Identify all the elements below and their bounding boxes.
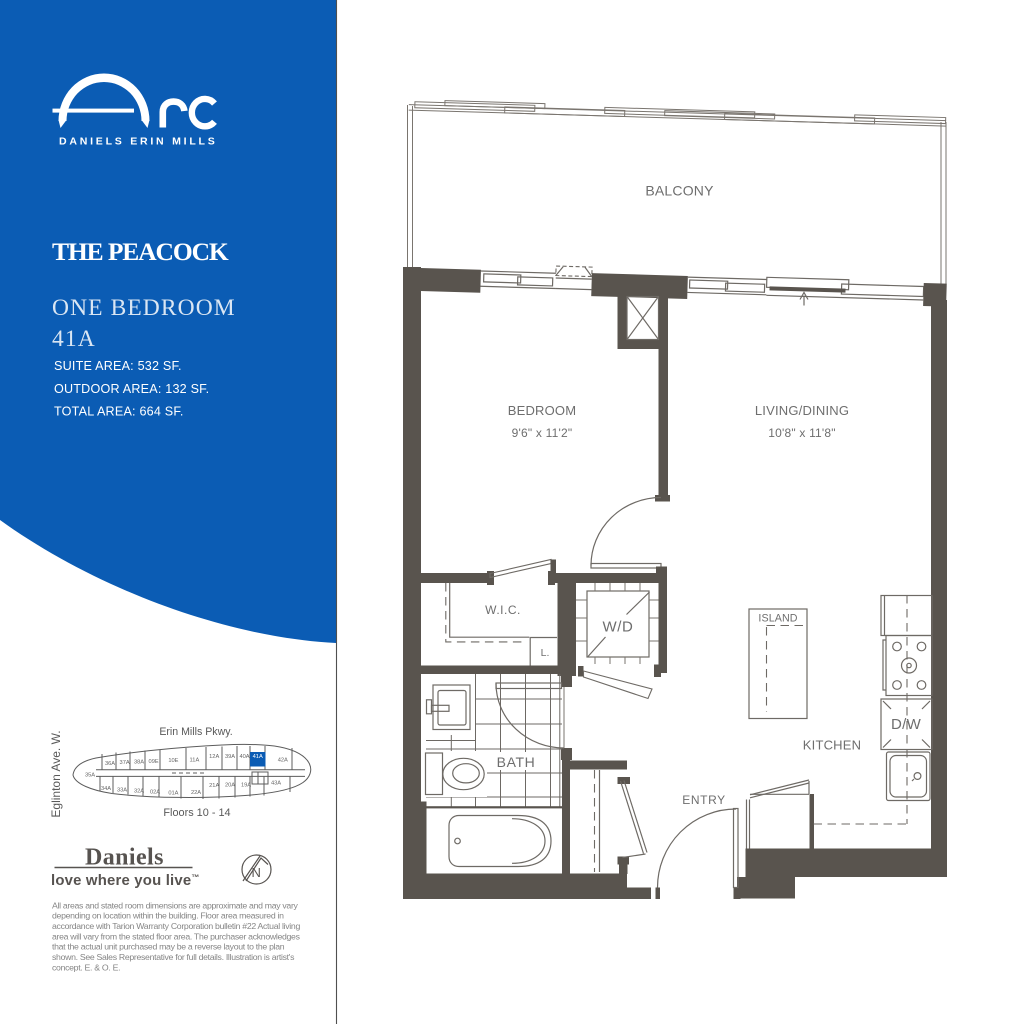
svg-text:Erin Mills Pkwy.: Erin Mills Pkwy. bbox=[159, 726, 232, 738]
svg-text:ONE BEDROOM: ONE BEDROOM bbox=[52, 295, 236, 321]
svg-text:BEDROOM: BEDROOM bbox=[508, 403, 577, 418]
svg-text:01A: 01A bbox=[168, 791, 178, 797]
svg-text:19A: 19A bbox=[241, 783, 251, 789]
svg-text:that the actual unit purchased: that the actual unit purchased may be a … bbox=[52, 942, 285, 952]
svg-text:12A: 12A bbox=[209, 754, 219, 760]
svg-text:9'6" x 11'2": 9'6" x 11'2" bbox=[512, 426, 573, 440]
svg-text:BATH: BATH bbox=[497, 754, 536, 770]
svg-text:KITCHEN: KITCHEN bbox=[803, 738, 861, 753]
svg-text:34A: 34A bbox=[101, 786, 111, 792]
svg-text:10'8" x 11'8": 10'8" x 11'8" bbox=[768, 426, 836, 440]
svg-text:All areas and stated room dime: All areas and stated room dimensions are… bbox=[52, 900, 299, 910]
svg-text:32A: 32A bbox=[134, 789, 144, 795]
svg-text:TOTAL AREA: 664 SF.: TOTAL AREA: 664 SF. bbox=[54, 404, 184, 418]
svg-text:22A: 22A bbox=[191, 790, 201, 796]
svg-text:concept. E. & O. E.: concept. E. & O. E. bbox=[52, 962, 120, 972]
svg-text:21A: 21A bbox=[209, 783, 219, 789]
svg-text:D/W: D/W bbox=[891, 716, 922, 733]
svg-text:Floors 10 - 14: Floors 10 - 14 bbox=[163, 807, 230, 819]
svg-text:area will vary from the stated: area will vary from the stated floor are… bbox=[52, 931, 301, 941]
svg-text:11A: 11A bbox=[190, 758, 200, 764]
svg-text:38A: 38A bbox=[134, 760, 144, 766]
svg-text:shown. See Sales Representativ: shown. See Sales Representative for full… bbox=[52, 952, 295, 962]
svg-text:42A: 42A bbox=[278, 758, 288, 764]
svg-text:SUITE AREA: 532 SF.: SUITE AREA: 532 SF. bbox=[54, 359, 182, 373]
svg-text:BALCONY: BALCONY bbox=[645, 183, 714, 199]
svg-text:LIVING/DINING: LIVING/DINING bbox=[755, 403, 849, 418]
svg-text:39A: 39A bbox=[225, 754, 235, 760]
svg-text:N: N bbox=[252, 865, 261, 880]
svg-text:Daniels: Daniels bbox=[85, 844, 164, 870]
svg-text:THE PEACOCK: THE PEACOCK bbox=[52, 237, 229, 266]
svg-text:W.I.C.: W.I.C. bbox=[485, 603, 521, 617]
svg-text:33A: 33A bbox=[117, 788, 127, 794]
svg-text:36A: 36A bbox=[105, 761, 115, 767]
svg-text:35A: 35A bbox=[85, 773, 95, 779]
svg-text:40A: 40A bbox=[239, 754, 249, 760]
svg-text:love where you live™: love where you live™ bbox=[51, 873, 200, 889]
svg-text:L.: L. bbox=[541, 647, 550, 659]
svg-text:02A: 02A bbox=[150, 790, 160, 796]
svg-text:depending on location within t: depending on location within the buildin… bbox=[52, 911, 284, 921]
svg-text:ENTRY: ENTRY bbox=[682, 793, 725, 807]
svg-text:41A: 41A bbox=[52, 326, 96, 352]
svg-text:41A: 41A bbox=[253, 754, 263, 760]
svg-text:20A: 20A bbox=[225, 783, 235, 789]
svg-text:accordance with Tarion Warrant: accordance with Tarion Warranty Corporat… bbox=[52, 921, 300, 931]
svg-text:37A: 37A bbox=[120, 760, 130, 766]
svg-text:DANIELS ERIN MILLS: DANIELS ERIN MILLS bbox=[59, 135, 218, 147]
svg-text:09E: 09E bbox=[149, 759, 159, 765]
svg-text:ISLAND: ISLAND bbox=[758, 613, 797, 625]
svg-text:43A: 43A bbox=[271, 781, 281, 787]
svg-text:OUTDOOR AREA: 132 SF.: OUTDOOR AREA: 132 SF. bbox=[54, 382, 209, 396]
svg-text:Eglinton Ave. W.: Eglinton Ave. W. bbox=[49, 730, 63, 817]
svg-text:10E: 10E bbox=[168, 758, 178, 764]
svg-text:W/D: W/D bbox=[603, 619, 634, 636]
